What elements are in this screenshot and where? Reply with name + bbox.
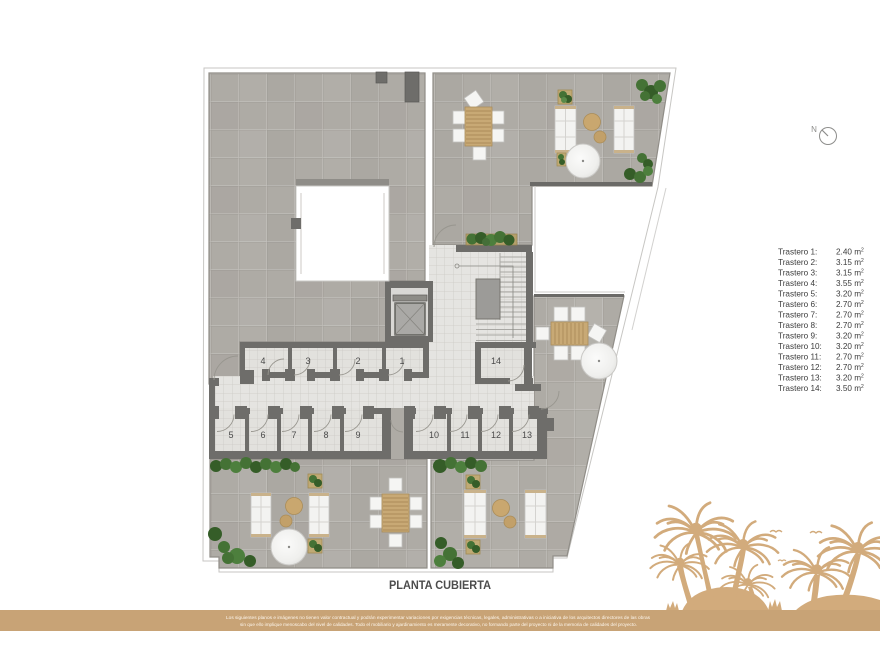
svg-text:9: 9 [355, 430, 360, 440]
svg-text:Trastero 4:: Trastero 4: [778, 279, 817, 288]
svg-text:Trastero 9:: Trastero 9: [778, 332, 817, 341]
svg-text:N: N [811, 125, 817, 134]
svg-text:Trastero 3:: Trastero 3: [778, 269, 817, 278]
svg-text:2.70 m2: 2.70 m2 [836, 353, 864, 362]
svg-text:3.20 m2: 3.20 m2 [836, 374, 864, 383]
svg-text:Trastero 12:: Trastero 12: [778, 363, 822, 372]
svg-text:12: 12 [491, 430, 501, 440]
svg-text:3.20 m2: 3.20 m2 [836, 342, 864, 351]
svg-text:1: 1 [399, 356, 404, 366]
svg-text:2.70 m2: 2.70 m2 [836, 363, 864, 372]
svg-text:Trastero 2:: Trastero 2: [778, 258, 817, 267]
svg-text:Los siguientes planos e imágen: Los siguientes planos e imágenes no tien… [226, 615, 651, 620]
svg-text:13: 13 [522, 430, 532, 440]
svg-text:3: 3 [305, 356, 310, 366]
svg-text:3.15 m2: 3.15 m2 [836, 269, 864, 278]
svg-text:Trastero 1:: Trastero 1: [778, 248, 817, 257]
svg-text:Trastero 5:: Trastero 5: [778, 290, 817, 299]
svg-text:sin que ello implique menoscab: sin que ello implique menoscabo del nive… [240, 622, 637, 627]
svg-text:4: 4 [260, 356, 265, 366]
svg-text:Trastero 6:: Trastero 6: [778, 300, 817, 309]
svg-text:Trastero 7:: Trastero 7: [778, 311, 817, 320]
svg-text:3.20 m2: 3.20 m2 [836, 332, 864, 341]
svg-text:14: 14 [491, 356, 501, 366]
svg-text:Trastero 10:: Trastero 10: [778, 342, 822, 351]
svg-text:6: 6 [260, 430, 265, 440]
svg-text:2.70 m2: 2.70 m2 [836, 300, 864, 309]
svg-text:2: 2 [355, 356, 360, 366]
svg-text:Trastero 11:: Trastero 11: [778, 353, 821, 362]
svg-text:Trastero 14:: Trastero 14: [778, 384, 822, 393]
svg-text:7: 7 [291, 430, 296, 440]
svg-text:3.50 m2: 3.50 m2 [836, 384, 864, 393]
svg-text:5: 5 [228, 430, 233, 440]
svg-text:Trastero 8:: Trastero 8: [778, 321, 817, 330]
svg-text:3.20 m2: 3.20 m2 [836, 290, 864, 299]
svg-text:PLANTA CUBIERTA: PLANTA CUBIERTA [389, 578, 491, 592]
svg-text:8: 8 [323, 430, 328, 440]
svg-text:Trastero 13:: Trastero 13: [778, 374, 822, 383]
svg-text:2.70 m2: 2.70 m2 [836, 311, 864, 320]
svg-text:2.70 m2: 2.70 m2 [836, 321, 864, 330]
svg-text:10: 10 [429, 430, 439, 440]
svg-text:2.40 m2: 2.40 m2 [836, 248, 864, 257]
svg-text:3.15 m2: 3.15 m2 [836, 258, 864, 267]
svg-text:11: 11 [460, 430, 469, 440]
svg-text:3.55 m2: 3.55 m2 [836, 279, 864, 288]
